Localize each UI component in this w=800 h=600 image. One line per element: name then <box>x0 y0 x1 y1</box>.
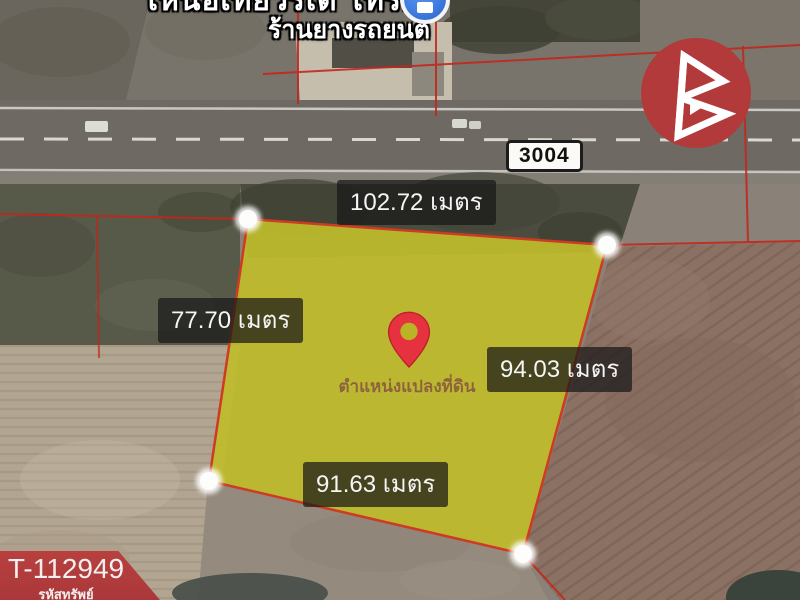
route-shield: 3004 <box>506 140 583 172</box>
storefront-glyph <box>417 2 433 13</box>
property-code: T-112949 <box>0 555 132 583</box>
vehicle <box>469 121 481 129</box>
measurement-right: 94.03 เมตร <box>487 347 632 392</box>
vehicle <box>85 121 108 132</box>
plot-location-caption: ตำแหน่งแปลงที่ดิน <box>322 373 492 400</box>
building-roof <box>332 38 414 68</box>
plot-corner-dot <box>510 541 536 567</box>
plot-corner-dot <box>235 206 261 232</box>
map-pin-icon <box>386 311 432 369</box>
listing-map-image: เหนือเที่ยวรเด โทร... ร้านยางรถยนต์ 3004… <box>0 0 800 600</box>
plot-corner-dot <box>196 468 222 494</box>
measurement-left: 77.70 เมตร <box>158 298 303 343</box>
measurement-bottom: 91.63 เมตร <box>303 462 448 507</box>
measurement-top: 102.72 เมตร <box>337 180 496 225</box>
plot-corner-dot <box>594 232 620 258</box>
brand-logo-icon <box>639 36 753 150</box>
vehicle <box>452 119 467 128</box>
property-code-label: รหัสทรัพย์ <box>0 584 132 600</box>
